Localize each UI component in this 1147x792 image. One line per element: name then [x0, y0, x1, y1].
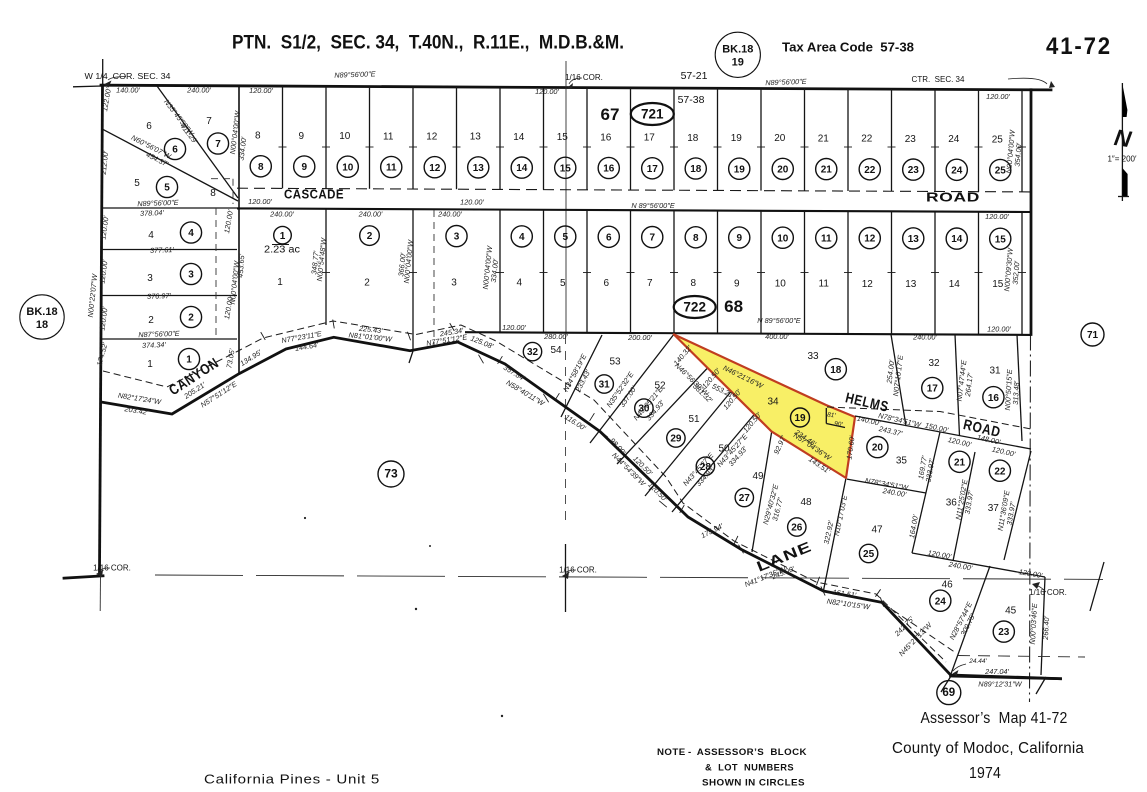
svg-text:20: 20: [774, 133, 786, 144]
svg-text:120.00′: 120.00′: [1018, 567, 1044, 580]
svg-text:10: 10: [777, 233, 789, 244]
svg-text:120.00′: 120.00′: [986, 92, 1010, 101]
svg-text:N87°56′00″E: N87°56′00″E: [138, 329, 180, 339]
svg-text:BK.18: BK.18: [26, 306, 57, 318]
svg-text:1: 1: [280, 231, 286, 242]
svg-text:120.00′: 120.00′: [249, 86, 273, 95]
svg-text:8: 8: [690, 278, 696, 289]
svg-text:9: 9: [298, 131, 304, 142]
svg-text:26: 26: [791, 523, 803, 534]
svg-text:1: 1: [277, 277, 283, 288]
svg-text:21: 21: [821, 165, 833, 176]
svg-text:N00°22′07″W: N00°22′07″W: [86, 273, 100, 318]
svg-text:11: 11: [821, 234, 832, 245]
svg-text:240.00′: 240.00′: [269, 210, 294, 219]
svg-text:16: 16: [603, 164, 615, 175]
svg-text:County of Modoc, California: County of Modoc, California: [892, 740, 1084, 757]
svg-text:120.00′: 120.00′: [985, 212, 1009, 221]
svg-text:14: 14: [951, 234, 963, 245]
svg-text:13: 13: [470, 132, 482, 143]
svg-text:23: 23: [908, 165, 920, 176]
svg-text:18: 18: [830, 365, 842, 376]
svg-text:19: 19: [734, 164, 746, 175]
svg-text:67: 67: [601, 105, 620, 124]
svg-text:4: 4: [516, 278, 522, 289]
svg-text:N89°56′00″E: N89°56′00″E: [137, 198, 179, 208]
svg-text:SHOWN IN CIRCLES: SHOWN IN CIRCLES: [702, 777, 805, 787]
svg-text:92.97′: 92.97′: [772, 434, 789, 456]
svg-text:2.23 ac: 2.23 ac: [264, 245, 300, 256]
svg-text:25: 25: [863, 549, 875, 560]
svg-text:134.95′: 134.95′: [238, 347, 263, 368]
svg-text:35: 35: [896, 455, 908, 466]
svg-text:N82°17′24″W: N82°17′24″W: [117, 391, 162, 407]
svg-text:CTR. SEC. 34: CTR. SEC. 34: [912, 75, 965, 84]
svg-text:8: 8: [210, 188, 216, 199]
svg-text:30: 30: [638, 404, 650, 415]
svg-text:140.00′: 140.00′: [116, 86, 140, 95]
svg-text:5: 5: [562, 232, 568, 243]
svg-text:1/16 COR.: 1/16 COR.: [559, 566, 597, 575]
svg-text:28: 28: [700, 462, 712, 473]
svg-text:120.00′: 120.00′: [502, 323, 526, 332]
svg-text:4: 4: [188, 228, 194, 239]
svg-text:11: 11: [819, 279, 830, 290]
svg-text:33: 33: [807, 351, 819, 362]
svg-text:18: 18: [687, 133, 699, 144]
svg-text:46: 46: [942, 580, 954, 591]
svg-text:24: 24: [948, 134, 960, 145]
svg-text:N 89°56′00″E: N 89°56′00″E: [757, 316, 801, 325]
svg-text:400.00′: 400.00′: [765, 332, 789, 341]
svg-text:120.00′: 120.00′: [987, 325, 1011, 334]
svg-text:6: 6: [603, 278, 609, 289]
svg-text:17: 17: [644, 133, 656, 144]
svg-text:1/16 COR.: 1/16 COR.: [1029, 588, 1067, 597]
svg-text:15: 15: [557, 132, 569, 143]
svg-text:203.42′: 203.42′: [123, 404, 149, 417]
svg-text:10: 10: [775, 279, 787, 290]
svg-text:13: 13: [473, 163, 485, 174]
svg-text:721: 721: [641, 107, 664, 122]
svg-text:23: 23: [905, 134, 917, 145]
svg-text:48: 48: [800, 497, 812, 508]
svg-text:32: 32: [928, 358, 940, 369]
svg-text:200.00′: 200.00′: [627, 333, 652, 342]
svg-text:6: 6: [172, 145, 178, 156]
svg-text:212.00′: 212.00′: [99, 150, 111, 176]
svg-text:13: 13: [905, 279, 917, 290]
svg-text:174.52′: 174.52′: [95, 341, 110, 367]
svg-text:71: 71: [1087, 330, 1099, 341]
svg-text:PTN. S1/2, SEC. 34, T.40N.,: PTN. S1/2, SEC. 34, T.40N., R.11E., M.D.…: [232, 33, 624, 54]
svg-text:41-72: 41-72: [1046, 33, 1112, 60]
svg-text:68: 68: [724, 297, 743, 316]
svg-text:120.00′: 120.00′: [248, 197, 272, 206]
svg-text:51: 51: [688, 414, 700, 425]
svg-text:243.37′: 243.37′: [877, 424, 904, 438]
svg-text:49: 49: [752, 471, 764, 482]
svg-text:NOTE - ASSESSOR’S BLOCK: NOTE - ASSESSOR’S BLOCK: [657, 747, 807, 757]
svg-text:12: 12: [862, 279, 874, 290]
svg-text:N00°03′46″E: N00°03′46″E: [1028, 603, 1039, 645]
svg-text:240.00′: 240.00′: [186, 86, 211, 95]
svg-text:8: 8: [693, 233, 699, 244]
svg-text:377.61′: 377.61′: [150, 245, 175, 255]
svg-text:22: 22: [994, 466, 1006, 477]
svg-text:2: 2: [367, 231, 373, 242]
svg-text:36: 36: [946, 497, 958, 508]
svg-text:15: 15: [560, 163, 572, 174]
svg-text:12: 12: [864, 234, 876, 245]
svg-text:Tax Area Code 57-38: Tax Area Code 57-38: [782, 40, 914, 55]
svg-text:1″= 200′: 1″= 200′: [1107, 155, 1137, 164]
svg-text:13: 13: [908, 234, 920, 245]
svg-text:29: 29: [670, 434, 682, 445]
svg-text:N58°40′11″W: N58°40′11″W: [505, 378, 547, 408]
svg-text:11: 11: [386, 163, 397, 174]
svg-text:73.05′: 73.05′: [224, 348, 236, 370]
svg-text:240.00′: 240.00′: [358, 210, 383, 219]
svg-text:120.00′: 120.00′: [97, 306, 109, 331]
svg-text:264.17′: 264.17′: [963, 372, 975, 398]
svg-text:CASCADE: CASCADE: [284, 187, 344, 202]
svg-text:24.44′: 24.44′: [968, 658, 987, 665]
svg-text:313.48′: 313.48′: [1011, 380, 1021, 405]
svg-text:7: 7: [215, 139, 221, 150]
svg-text:19: 19: [732, 57, 744, 69]
svg-text:22: 22: [864, 165, 876, 176]
svg-text:45: 45: [1005, 605, 1017, 616]
svg-text:378.04′: 378.04′: [140, 208, 165, 218]
svg-text:22: 22: [861, 134, 873, 145]
svg-text:15: 15: [995, 234, 1007, 245]
svg-text:31: 31: [989, 366, 1001, 377]
svg-text:N10°17′03″E: N10°17′03″E: [832, 494, 849, 536]
svg-text:12: 12: [429, 163, 441, 174]
svg-text:8: 8: [258, 162, 264, 173]
svg-text:18: 18: [36, 319, 48, 331]
svg-text:19: 19: [794, 413, 806, 424]
svg-text:376.97′: 376.97′: [147, 291, 172, 301]
svg-text:ROAD: ROAD: [926, 190, 980, 205]
svg-text:3: 3: [451, 278, 457, 289]
svg-text:W 1/4 COR. SEC. 34: W 1/4 COR. SEC. 34: [85, 72, 172, 81]
svg-text:120.00′: 120.00′: [991, 445, 1017, 459]
svg-text:10: 10: [342, 162, 354, 173]
svg-text:247.04′: 247.04′: [984, 667, 1009, 676]
svg-text:21: 21: [954, 457, 966, 468]
svg-text:23: 23: [998, 627, 1010, 638]
svg-text:N89°56′00″E: N89°56′00″E: [765, 77, 807, 87]
svg-text:9: 9: [734, 278, 740, 289]
svg-text:411.29′: 411.29′: [178, 122, 200, 146]
svg-text:240.00′: 240.00′: [947, 559, 973, 572]
svg-text:334.00′: 334.00′: [237, 136, 249, 161]
svg-text:7: 7: [206, 116, 212, 127]
svg-text:47: 47: [871, 525, 883, 536]
svg-text:334.00′: 334.00′: [489, 258, 500, 283]
svg-text:10: 10: [339, 131, 351, 142]
svg-text:73: 73: [384, 467, 398, 481]
svg-text:722: 722: [683, 300, 706, 315]
svg-text:2: 2: [188, 313, 194, 324]
svg-text:1/16 COR.: 1/16 COR.: [565, 73, 603, 82]
svg-text:5: 5: [134, 178, 140, 189]
svg-text:N89°12′31″W: N89°12′31″W: [978, 680, 1022, 689]
svg-text:BK.18: BK.18: [722, 44, 753, 56]
svg-text:27: 27: [739, 493, 751, 504]
svg-text:N89°56′00″E: N89°56′00″E: [334, 69, 376, 79]
svg-text:11: 11: [383, 131, 394, 142]
svg-text:16: 16: [988, 393, 1000, 404]
svg-text:20: 20: [872, 443, 884, 454]
svg-text:280.00′: 280.00′: [543, 332, 568, 341]
svg-text:25: 25: [992, 134, 1004, 145]
svg-text:120.50′: 120.50′: [646, 480, 670, 504]
svg-text:4: 4: [519, 232, 525, 243]
svg-text:5: 5: [560, 278, 566, 289]
svg-text:3: 3: [147, 273, 153, 284]
svg-text:18: 18: [690, 164, 702, 175]
svg-text:9: 9: [301, 162, 307, 173]
svg-text:14: 14: [949, 279, 961, 290]
svg-text:17: 17: [927, 384, 939, 395]
svg-text:240.00′: 240.00′: [912, 333, 937, 342]
svg-text:1: 1: [147, 359, 153, 370]
svg-text:2: 2: [148, 315, 154, 326]
svg-text:California Pines - Unit 5: California Pines - Unit 5: [204, 772, 380, 787]
svg-text:1974: 1974: [969, 765, 1001, 782]
svg-text:14: 14: [513, 132, 525, 143]
svg-text:1: 1: [186, 355, 192, 366]
svg-text:3: 3: [454, 232, 460, 243]
svg-text:32: 32: [527, 347, 539, 358]
svg-text:17: 17: [647, 164, 659, 175]
svg-text:37: 37: [988, 503, 1000, 514]
svg-text:34: 34: [767, 397, 779, 408]
svg-text:9: 9: [736, 233, 742, 244]
svg-text:31: 31: [599, 380, 611, 391]
svg-text:3: 3: [188, 270, 194, 281]
svg-text:50: 50: [718, 443, 730, 454]
svg-text:7: 7: [647, 278, 653, 289]
svg-text:120.00′: 120.00′: [535, 87, 559, 96]
svg-text:120.00′: 120.00′: [222, 294, 235, 320]
svg-text:Assessor’s Map 41-72: Assessor’s Map 41-72: [921, 710, 1068, 727]
svg-text:57-21: 57-21: [681, 70, 708, 82]
svg-text:120.00′: 120.00′: [98, 215, 110, 240]
svg-text:52: 52: [654, 380, 666, 391]
svg-text:54: 54: [550, 345, 562, 356]
svg-text:8: 8: [255, 131, 261, 142]
svg-text:352.00′: 352.00′: [1010, 260, 1021, 285]
svg-text:24: 24: [935, 596, 947, 607]
svg-text:120.00′: 120.00′: [97, 259, 109, 284]
svg-text:5: 5: [164, 183, 170, 194]
svg-text:266.40′: 266.40′: [1041, 615, 1051, 641]
svg-text:16: 16: [600, 132, 612, 143]
svg-text:57-38: 57-38: [678, 94, 705, 106]
svg-text:21: 21: [818, 133, 830, 144]
svg-text:120.00′: 120.00′: [222, 208, 235, 234]
svg-text:150.00′: 150.00′: [924, 421, 950, 435]
svg-text:1/16 COR.: 1/16 COR.: [93, 564, 131, 573]
svg-text:N: N: [1113, 124, 1134, 152]
svg-text:7: 7: [649, 233, 655, 244]
svg-text:24: 24: [951, 165, 963, 176]
svg-text:14: 14: [516, 163, 528, 174]
svg-text:240.00′: 240.00′: [437, 210, 462, 219]
svg-text:6: 6: [606, 232, 612, 243]
svg-text:4: 4: [148, 230, 154, 241]
svg-text:53: 53: [609, 357, 621, 368]
svg-text:12: 12: [426, 132, 438, 143]
svg-text:6: 6: [146, 121, 152, 132]
svg-text:120.00′: 120.00′: [460, 198, 484, 207]
svg-text:20: 20: [777, 165, 789, 176]
svg-text:2: 2: [364, 277, 370, 288]
svg-text:& LOT NUMBERS: & LOT NUMBERS: [705, 762, 794, 772]
svg-text:374.34′: 374.34′: [142, 340, 167, 350]
svg-text:N 89°56′00″E: N 89°56′00″E: [631, 201, 675, 210]
svg-text:69: 69: [942, 687, 955, 699]
svg-text:19: 19: [731, 133, 743, 144]
